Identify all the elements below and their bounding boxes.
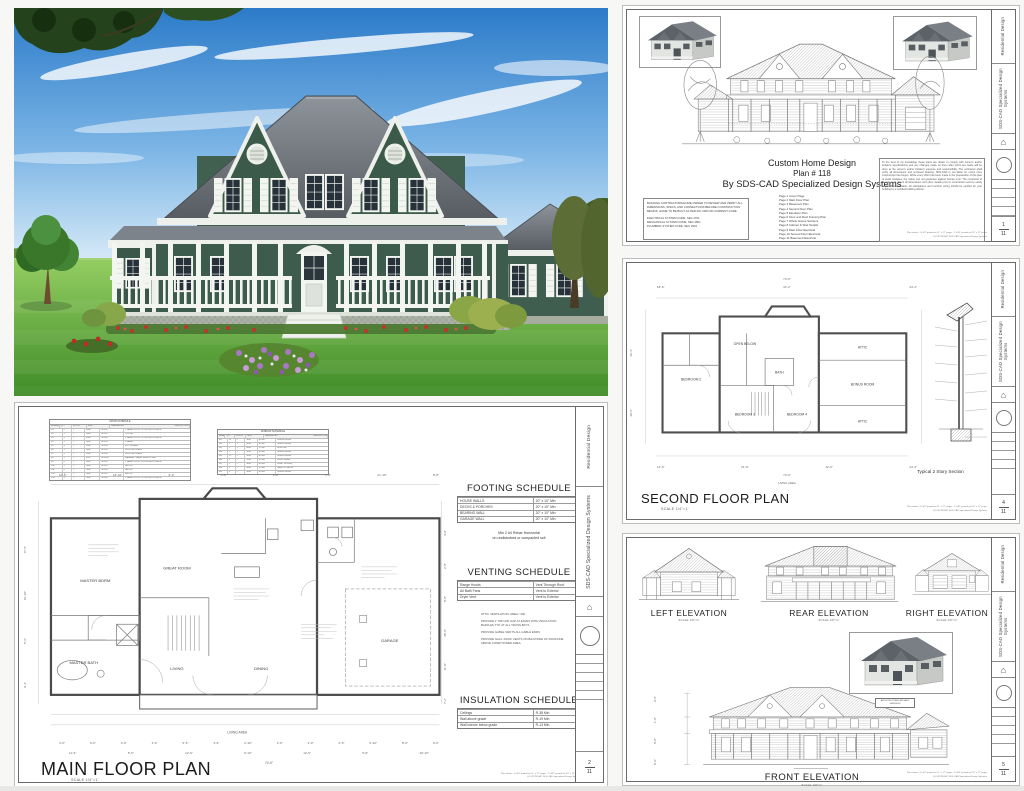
rear-elevation-caption: REAR ELEVATION SCALE 1/8"=1' [753, 608, 905, 622]
window-schedule-table: WINDOW SCHEDULE NUMBERQTYFLOORSIZEDIMENS… [217, 429, 329, 475]
cover-footer-print: Plan sheets: 1'=1/4" printed on 11" x 17… [837, 232, 987, 239]
main-floor-scale: SCALE 1/4"=1' [71, 778, 99, 782]
left-elevation-caption: LEFT ELEVATION SCALE 1/8"=1' [635, 608, 743, 622]
porch-outline [140, 695, 317, 709]
door-schedule-row: D211 286880"x32"POCKET [50, 432, 190, 436]
main-floor-footer-print: Plan sheets: 1'=1/4" printed on 11" x 17… [419, 773, 581, 780]
second-floor-footer-print: Plan sheets: 1'=1/4" printed on 11" x 17… [837, 506, 987, 513]
front-elevation-dims: 9'-6"1'-0"8'-0"8'-0" [653, 688, 657, 772]
door-schedule-row: D611 266880"x30"FROSTED GLASS [50, 448, 190, 452]
purple-flower-cluster [219, 343, 319, 377]
footing-schedule-table: HOUSE WALLS20" x 10" MinDECKS & PORCHES2… [457, 496, 581, 523]
door-schedule-row: D922 266880"x30"2 PANEL DOOR, COLOR BRIT… [50, 460, 190, 464]
svg-text:GARAGE: GARAGE [381, 638, 399, 643]
second-floor-dims-total-bottom: 74'-0" [657, 473, 917, 477]
schedule-row: BEARING WALL20" x 10" Min [458, 510, 580, 516]
gable-vent [248, 145, 266, 163]
titleblock-page-number: 511 [992, 757, 1015, 781]
wall-section-detail [933, 297, 989, 460]
house-rendering-photo [14, 8, 608, 396]
titleblock-fields [992, 180, 1015, 217]
main-floor-dims-top: 10'-6"18'-10"9'-0"5'-8"2'-8"1'-0"21'-10"… [59, 473, 439, 477]
cover-sheet: Custom Home Design Plan # 118 By SDS-CAD… [622, 5, 1020, 246]
scan-edge-strip [0, 786, 1024, 791]
main-floor-plan-drawing: MASTER BDRM GREAT ROOM MASTER BATH LIVIN… [35, 483, 443, 744]
svg-text:BEDROOM 4: BEDROOM 4 [787, 413, 807, 417]
titleblock-page-number: 111 [992, 217, 1015, 241]
rear-elevation-drawing [753, 540, 905, 613]
door-schedule-row: D411 246880"x28"6 PANEL [50, 440, 190, 444]
main-floor-sheet: DOOR SCHEDULE NUMBERQTYFLOORSIZEDIMENSIO… [14, 402, 608, 787]
elevations-footer-print: Plan sheets: 1'=1/4" printed on 11" x 17… [847, 772, 987, 779]
cover-review-note: BUILDING CONTRACTORS/HOME OWNER TO REVIE… [643, 198, 749, 240]
main-floor-titleblock-strip: Residential Design SDS-CAD Specialized D… [575, 407, 603, 782]
titleblock-page-number: 211 [576, 752, 603, 782]
second-floor-dims-bottom: 12'-6"21'-0"12'-6"24'-4" [657, 465, 917, 469]
svg-text:BONUS ROOM: BONUS ROOM [851, 382, 875, 386]
door-schedule-row: D1122 246880"x28"BIFOLD [50, 468, 190, 472]
section-detail-label: Typical 2 Story Section [917, 469, 997, 474]
door-schedule-row: D531 266880"x30"EXT SCREEN [50, 444, 190, 448]
cover-titleblock-strip: Residential Design SDS-CAD Specialized D… [991, 10, 1015, 241]
main-floor-dims-left: 17'-0"15'-10"5'-6"9'-4" [23, 527, 27, 707]
titleblock-stamp-circle [576, 617, 603, 655]
footing-schedule-title: FOOTING SCHEDULE [457, 483, 581, 494]
main-floor-dims-right: 4'-0"2'-8"8'-8"28'-0"11'-8"7'-2" [443, 517, 447, 717]
window-schedule-row: W822 604072"x48"SASH OCTAGON [218, 466, 328, 470]
attic-ventilation-notes: ATTIC VENTILATION: AREA / 300PROVIDE 1" … [481, 613, 567, 649]
schedule-row: Dryer VentVent to Exterior [458, 594, 580, 600]
attic-note: ATTIC VENTILATION: AREA / 300 [481, 613, 567, 617]
code-line: PLUMBING SYSTEM CODE: SEC 2901 [647, 225, 745, 229]
door-schedule-row: D711 266880"x30"FROSTED GLASS [50, 452, 190, 456]
svg-text:ATTIC: ATTIC [858, 419, 868, 423]
second-floor-dims-left: 26'-4"30'-6" [629, 323, 633, 443]
roof-shingle-note: ARCHITECTURAL ASPHALT SHINGLES [875, 698, 915, 708]
window-schedule-row: W612 203024"x36"FIXED GLASS [218, 458, 328, 462]
main-floor-title: MAIN FLOOR PLAN [41, 759, 211, 780]
titleblock-fields [992, 708, 1015, 757]
door-schedule-row: D311 306880"x36"2 PANEL DOOR, COLOR BRIT… [50, 436, 190, 440]
second-floor-plan-drawing: BEDROOM 2 OPEN BELOW BATH BEDROOM 3 BEDR… [639, 293, 929, 466]
porch-roof [110, 226, 506, 240]
window-schedule-row: W221 305036"x60"SINGLE HUNG [218, 442, 328, 446]
gable-vent [386, 145, 404, 163]
second-floor-dims-top: 18'-6"31'-2"24'-4" [657, 285, 917, 289]
door-schedule-row: D121 286880"x36"2 PANEL DOOR, COLOR BRIT… [50, 428, 190, 432]
svg-text:DINING: DINING [254, 666, 268, 671]
titleblock-fields [576, 655, 603, 752]
sds-logo-icon: ⌂ [992, 387, 1015, 403]
svg-text:BEDROOM 3: BEDROOM 3 [735, 413, 755, 417]
door-schedule-table: DOOR SCHEDULE NUMBERQTYFLOORSIZEDIMENSIO… [49, 419, 191, 481]
elevations-sheet: LEFT ELEVATION SCALE 1/8"=1' REAR ELEVAT… [622, 533, 1020, 786]
right-elevation-drawing [911, 542, 993, 611]
second-floor-scale: SCALE 1/4"=1' [661, 507, 689, 511]
venting-schedule-title: VENTING SCHEDULE [457, 567, 581, 578]
svg-text:BEDROOM 2: BEDROOM 2 [681, 377, 701, 381]
code-list: ELECTRICAL SYSTEM CODE: SEC 2701MECHANIC… [647, 217, 745, 229]
right-elevation-caption: RIGHT ELEVATION SCALE 1/8"=1' [899, 608, 995, 622]
window-schedule-row: W1131 305036"x60"SINGLE HUNG [218, 438, 328, 442]
titleblock-page-number: 411 [992, 495, 1015, 519]
attic-note: PROVIDE 1" MIN AIR GAP AT EAVES WITH INS… [481, 620, 567, 628]
insulation-schedule-title: INSULATION SCHEDULE [453, 695, 585, 706]
second-floor-dims-total-top: 74'-0" [657, 277, 917, 281]
sds-logo-icon: ⌂ [992, 662, 1015, 678]
titleblock-fields [992, 433, 1015, 495]
entry-door [296, 245, 332, 312]
svg-text:OPEN BELOW: OPEN BELOW [734, 342, 757, 346]
svg-text:ATTIC: ATTIC [858, 345, 868, 349]
main-floor-dims-bottom2: 11'-6"5'-6"12'-6"5'-10"12'-6"5'-6"20'-10… [69, 751, 429, 755]
svg-text:LIVING: LIVING [170, 666, 183, 671]
sds-logo-icon: ⌂ [576, 597, 603, 617]
cover-front-elevation-drawing [673, 34, 949, 158]
door-schedule-row: D811 907084"x108"GARAGE 2 PANEL SWING OV… [50, 456, 190, 460]
second-floor-sheet: 18'-6"31'-2"24'-4" 74'-0" 26'-4"30'-6" [622, 258, 1020, 524]
titleblock-stamp-circle [992, 678, 1015, 708]
venting-schedule-table: Range HoodsVent Through RoofAll Bath Fan… [457, 580, 581, 601]
titleblock-stamp-circle [992, 403, 1015, 433]
svg-text:MASTER BDRM: MASTER BDRM [80, 578, 111, 583]
window-schedule-row: W311 605072"x60"BOW UNIT [218, 446, 328, 450]
second-floor-title: SECOND FLOOR PLAN [641, 491, 789, 506]
house-rendering-scene [14, 8, 608, 396]
second-floor-living-area-label: LIVING AREA [737, 481, 837, 485]
svg-text:MASTER BATH: MASTER BATH [69, 660, 98, 665]
schedule-row: CeilingsR-38 Min [458, 709, 580, 715]
schedule-row: HOUSE WALLS20" x 10" Min [458, 497, 580, 503]
schedule-row: GARAGE WALL20" x 10" Min [458, 516, 580, 522]
elevations-titleblock-strip: Residential Design SDS-CAD Specialized D… [991, 538, 1015, 781]
window-schedule-row: W5112 304036"x48"SINGLE HUNG [218, 454, 328, 458]
window-schedule-row: W712 304036"x48"RIGHT SLIDING [218, 462, 328, 466]
titleblock-stamp-circle [992, 150, 1015, 180]
schedule-row: Wall interior below gradeR-13 Min [458, 722, 580, 728]
titleblock-division: Residential Design [1001, 17, 1006, 56]
second-floor-titleblock-strip: Residential Design SDS-CAD Specialized D… [991, 263, 1015, 519]
svg-text:GREAT ROOM: GREAT ROOM [163, 566, 191, 571]
left-elevation-drawing [635, 542, 743, 611]
main-floor-dims-bottom1: 4'-6"6'-6"3'-0"3'-6"5'-6"3'-6"2'-10"3'-6… [59, 741, 439, 745]
svg-text:LIVING AREA: LIVING AREA [227, 731, 248, 735]
svg-text:BATH: BATH [775, 371, 784, 375]
attic-note: PROVIDE GALV. ROOF VENTS ON BACKSIDE OF … [481, 638, 567, 646]
attic-note: PROVIDE GABLE VENTS ALL GABLE ENDS [481, 631, 567, 635]
cover-disclaimer: To the best of my knowledge these plans … [879, 158, 985, 242]
schedule-row: DECKS & PORCHES20" x 10" Min [458, 503, 580, 509]
door-schedule-row: D1012 286880"x32"BIFOLD [50, 464, 190, 468]
insulation-schedule-table: CeilingsR-38 MinWall above gradeR-19 Min… [457, 708, 581, 729]
schedule-row: All Bath FansVent to Exterior [458, 587, 580, 593]
window-schedule-row: W421 305036"x60"SINGLE HUNG [218, 450, 328, 454]
schedule-row: Range HoodsVent Through Roof [458, 581, 580, 587]
titleblock-company: SDS-CAD Specialized Design Systems [999, 64, 1009, 133]
footing-schedule-notes: Min 2 #4 Rebar Horizontal on undisturbed… [457, 531, 581, 541]
sds-logo-icon: ⌂ [992, 134, 1015, 150]
schedule-row: Wall above gradeR-19 Min [458, 715, 580, 721]
review-note-text: BUILDING CONTRACTORS/HOME OWNER TO REVIE… [647, 202, 745, 214]
